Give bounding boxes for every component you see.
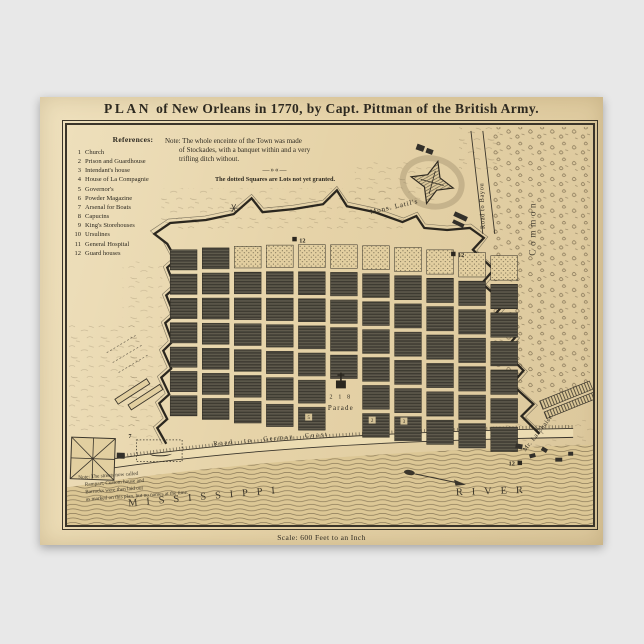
reference-number: 4 <box>71 175 81 184</box>
city-block <box>427 420 454 444</box>
dotted-squares-note: The dotted Squares are Lots not yet gran… <box>165 175 385 184</box>
city-block <box>491 370 518 394</box>
city-block <box>234 375 261 397</box>
city-block <box>266 298 293 320</box>
city-block <box>202 323 229 344</box>
map-poster: PLANof New Orleans in 1770, by Capt. Pit… <box>40 97 603 545</box>
city-block <box>330 272 357 295</box>
reference-number: 6 <box>71 194 81 203</box>
city-block <box>298 245 325 268</box>
city-block <box>202 273 229 294</box>
city-block <box>395 389 422 413</box>
reference-number: 7 <box>71 203 81 212</box>
enceinte-note-line3: trifling ditch without. <box>165 155 385 164</box>
city-block <box>363 385 390 409</box>
city-block <box>427 307 454 331</box>
note-divider-ornament: —»«— <box>165 166 385 174</box>
city-block <box>234 246 261 268</box>
reference-label: Guard houses <box>85 249 121 258</box>
enceinte-note-line2: of Stockades, with a banquet within and … <box>165 146 385 155</box>
city-block <box>491 341 518 365</box>
city-block <box>298 353 325 376</box>
city-block <box>427 335 454 359</box>
city-block <box>459 367 486 391</box>
reference-number: 2 <box>71 157 81 166</box>
guard-marker-12-lachaise: 12 <box>509 461 515 468</box>
city-block <box>202 373 229 394</box>
city-grid <box>170 245 517 452</box>
reference-item: 10Ursulines <box>71 230 195 239</box>
city-block <box>170 396 197 416</box>
city-block <box>363 302 390 326</box>
city-block <box>298 380 325 403</box>
city-block <box>266 325 293 347</box>
road-to-bayou-label: Road to Bayou <box>478 182 487 229</box>
city-block <box>330 245 357 268</box>
reference-number: 5 <box>71 185 81 194</box>
reference-number: 12 <box>71 249 81 258</box>
city-block <box>170 298 197 318</box>
reference-number: 9 <box>71 221 81 230</box>
city-block <box>170 347 197 367</box>
city-block <box>395 332 422 356</box>
reference-label: Church <box>85 148 104 157</box>
city-block <box>395 276 422 300</box>
reference-label: Governor's <box>85 185 114 194</box>
reference-item: 6Powder Magazine <box>71 194 195 203</box>
reference-label: Arsenal for Boats <box>85 203 131 212</box>
reference-label: Intendant's house <box>85 166 130 175</box>
reference-label: Ursulines <box>85 230 110 239</box>
city-block <box>266 245 293 267</box>
city-block <box>491 427 518 451</box>
reference-item: 5Governor's <box>71 185 195 194</box>
map-area: Road to German Coast 2 1 8 Parade 5 <box>67 125 593 525</box>
reference-label: General Hospital <box>85 240 129 249</box>
reference-label: Capucins <box>85 212 109 221</box>
city-block <box>170 323 197 343</box>
city-block <box>459 281 486 305</box>
city-block <box>395 304 422 328</box>
poster-title: PLANof New Orleans in 1770, by Capt. Pit… <box>40 101 603 117</box>
reference-number: 11 <box>71 240 81 249</box>
guard-marker-12-left: 12 <box>299 237 305 244</box>
church-icon <box>336 380 346 388</box>
common-label: Common <box>528 200 538 256</box>
city-block <box>491 313 518 337</box>
parade-numbers: 2 1 8 <box>330 394 353 400</box>
city-block <box>202 298 229 319</box>
city-block <box>427 278 454 302</box>
reference-number: 10 <box>71 230 81 239</box>
enceinte-note: Note: The whole enceinte of the Town was… <box>165 137 385 184</box>
city-block <box>395 360 422 384</box>
reference-label: Prison and Guardhouse <box>85 157 146 166</box>
reference-item: 9King's Storehouses <box>71 221 195 230</box>
reference-item: 11General Hospital <box>71 240 195 249</box>
city-block <box>202 248 229 269</box>
city-block <box>234 350 261 372</box>
reference-label: House of La Compagnie <box>85 175 149 184</box>
city-block <box>491 284 518 308</box>
city-block <box>363 330 390 354</box>
city-block <box>234 324 261 346</box>
city-block <box>427 363 454 387</box>
city-block <box>491 256 518 280</box>
city-block <box>266 404 293 426</box>
city-block <box>459 338 486 362</box>
reference-item: 8Capucins <box>71 212 195 221</box>
reference-number: 3 <box>71 166 81 175</box>
reference-item: 12Guard houses <box>71 249 195 258</box>
city-block <box>459 310 486 334</box>
arsenal-marker-7: 7 <box>129 434 132 440</box>
city-block <box>330 300 357 323</box>
city-block <box>234 272 261 294</box>
city-block <box>298 299 325 322</box>
guard-marker-12-right: 12 <box>458 252 464 259</box>
reference-number: 1 <box>71 148 81 157</box>
title-plan-word: PLAN <box>104 101 151 116</box>
city-block <box>491 399 518 423</box>
reference-label: King's Storehouses <box>85 221 135 230</box>
city-block <box>459 424 486 448</box>
city-block <box>202 348 229 369</box>
city-block <box>266 378 293 400</box>
city-block <box>298 272 325 295</box>
reference-number: 8 <box>71 212 81 221</box>
city-block <box>363 246 390 270</box>
city-block <box>266 272 293 294</box>
city-block <box>395 417 422 441</box>
scale-note: Scale: 600 Feet to an Inch <box>40 533 603 542</box>
city-block <box>427 250 454 274</box>
parade-label: Parade <box>328 405 354 412</box>
city-block <box>363 358 390 382</box>
city-block <box>363 274 390 298</box>
enceinte-note-line1: Note: The whole enceinte of the Town was… <box>165 137 385 146</box>
city-block <box>170 371 197 391</box>
city-block <box>427 392 454 416</box>
reference-label: Powder Magazine <box>85 194 132 203</box>
city-block <box>234 401 261 423</box>
map-frame: Road to German Coast 2 1 8 Parade 5 <box>62 120 598 530</box>
title-rest: of New Orleans in 1770, by Capt. Pittman… <box>156 101 539 116</box>
reference-item: 7Arsenal for Boats <box>71 203 195 212</box>
city-block <box>459 395 486 419</box>
city-block <box>170 274 197 294</box>
city-block <box>298 326 325 349</box>
city-block <box>330 328 357 351</box>
city-block <box>266 351 293 373</box>
city-block <box>395 247 422 271</box>
city-block <box>202 398 229 419</box>
city-block <box>234 298 261 320</box>
city-block <box>363 414 390 438</box>
